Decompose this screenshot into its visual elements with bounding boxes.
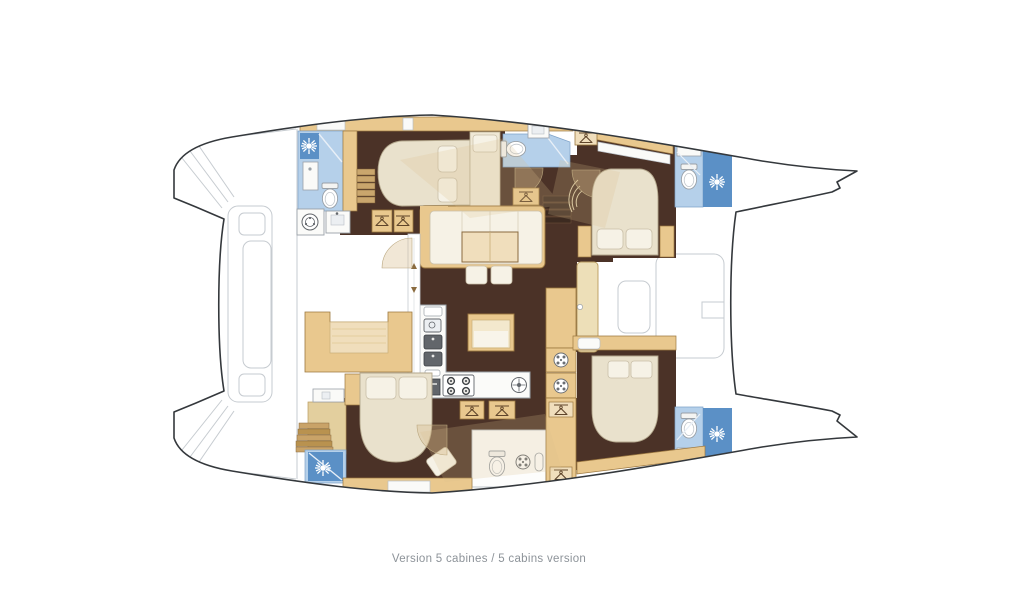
pillow	[631, 361, 652, 378]
sink-icon	[424, 352, 442, 366]
boat-floor-plan	[0, 0, 1024, 600]
cockpit-galley-module	[297, 209, 350, 235]
ottoman	[466, 266, 487, 284]
sink-icon	[424, 335, 442, 349]
screenshot-root: { "caption": { "text": "Version 5 cabine…	[0, 0, 1024, 600]
ottoman	[491, 266, 512, 284]
bed-starboard-bottom	[592, 356, 658, 442]
caption: Version 5 cabines / 5 cabins version	[0, 553, 978, 565]
fridge-column	[546, 288, 576, 398]
pillow	[597, 229, 623, 249]
washer-icon	[302, 214, 318, 230]
vent-icon	[554, 379, 568, 393]
bathroom-port-bottom	[305, 450, 346, 483]
stove-icon	[443, 375, 474, 396]
shower-icon	[709, 174, 725, 190]
wardrobe-column	[343, 131, 357, 211]
pillow	[399, 377, 427, 399]
pillow	[626, 229, 652, 249]
toilet-icon	[322, 183, 338, 208]
saloon-table	[468, 314, 514, 351]
vent-icon	[554, 353, 568, 367]
stairs-port-aft	[296, 423, 333, 452]
door-handle	[577, 304, 582, 309]
bathroom-port-aft	[298, 131, 343, 211]
stairs-port-forward	[357, 169, 375, 203]
pillow	[366, 377, 396, 399]
toilet-icon	[681, 164, 697, 189]
shower-icon	[709, 426, 725, 442]
pillow	[608, 361, 629, 378]
vent-icon	[512, 378, 527, 393]
sink-icon	[303, 162, 318, 190]
coffee-machine-icon	[424, 319, 441, 332]
